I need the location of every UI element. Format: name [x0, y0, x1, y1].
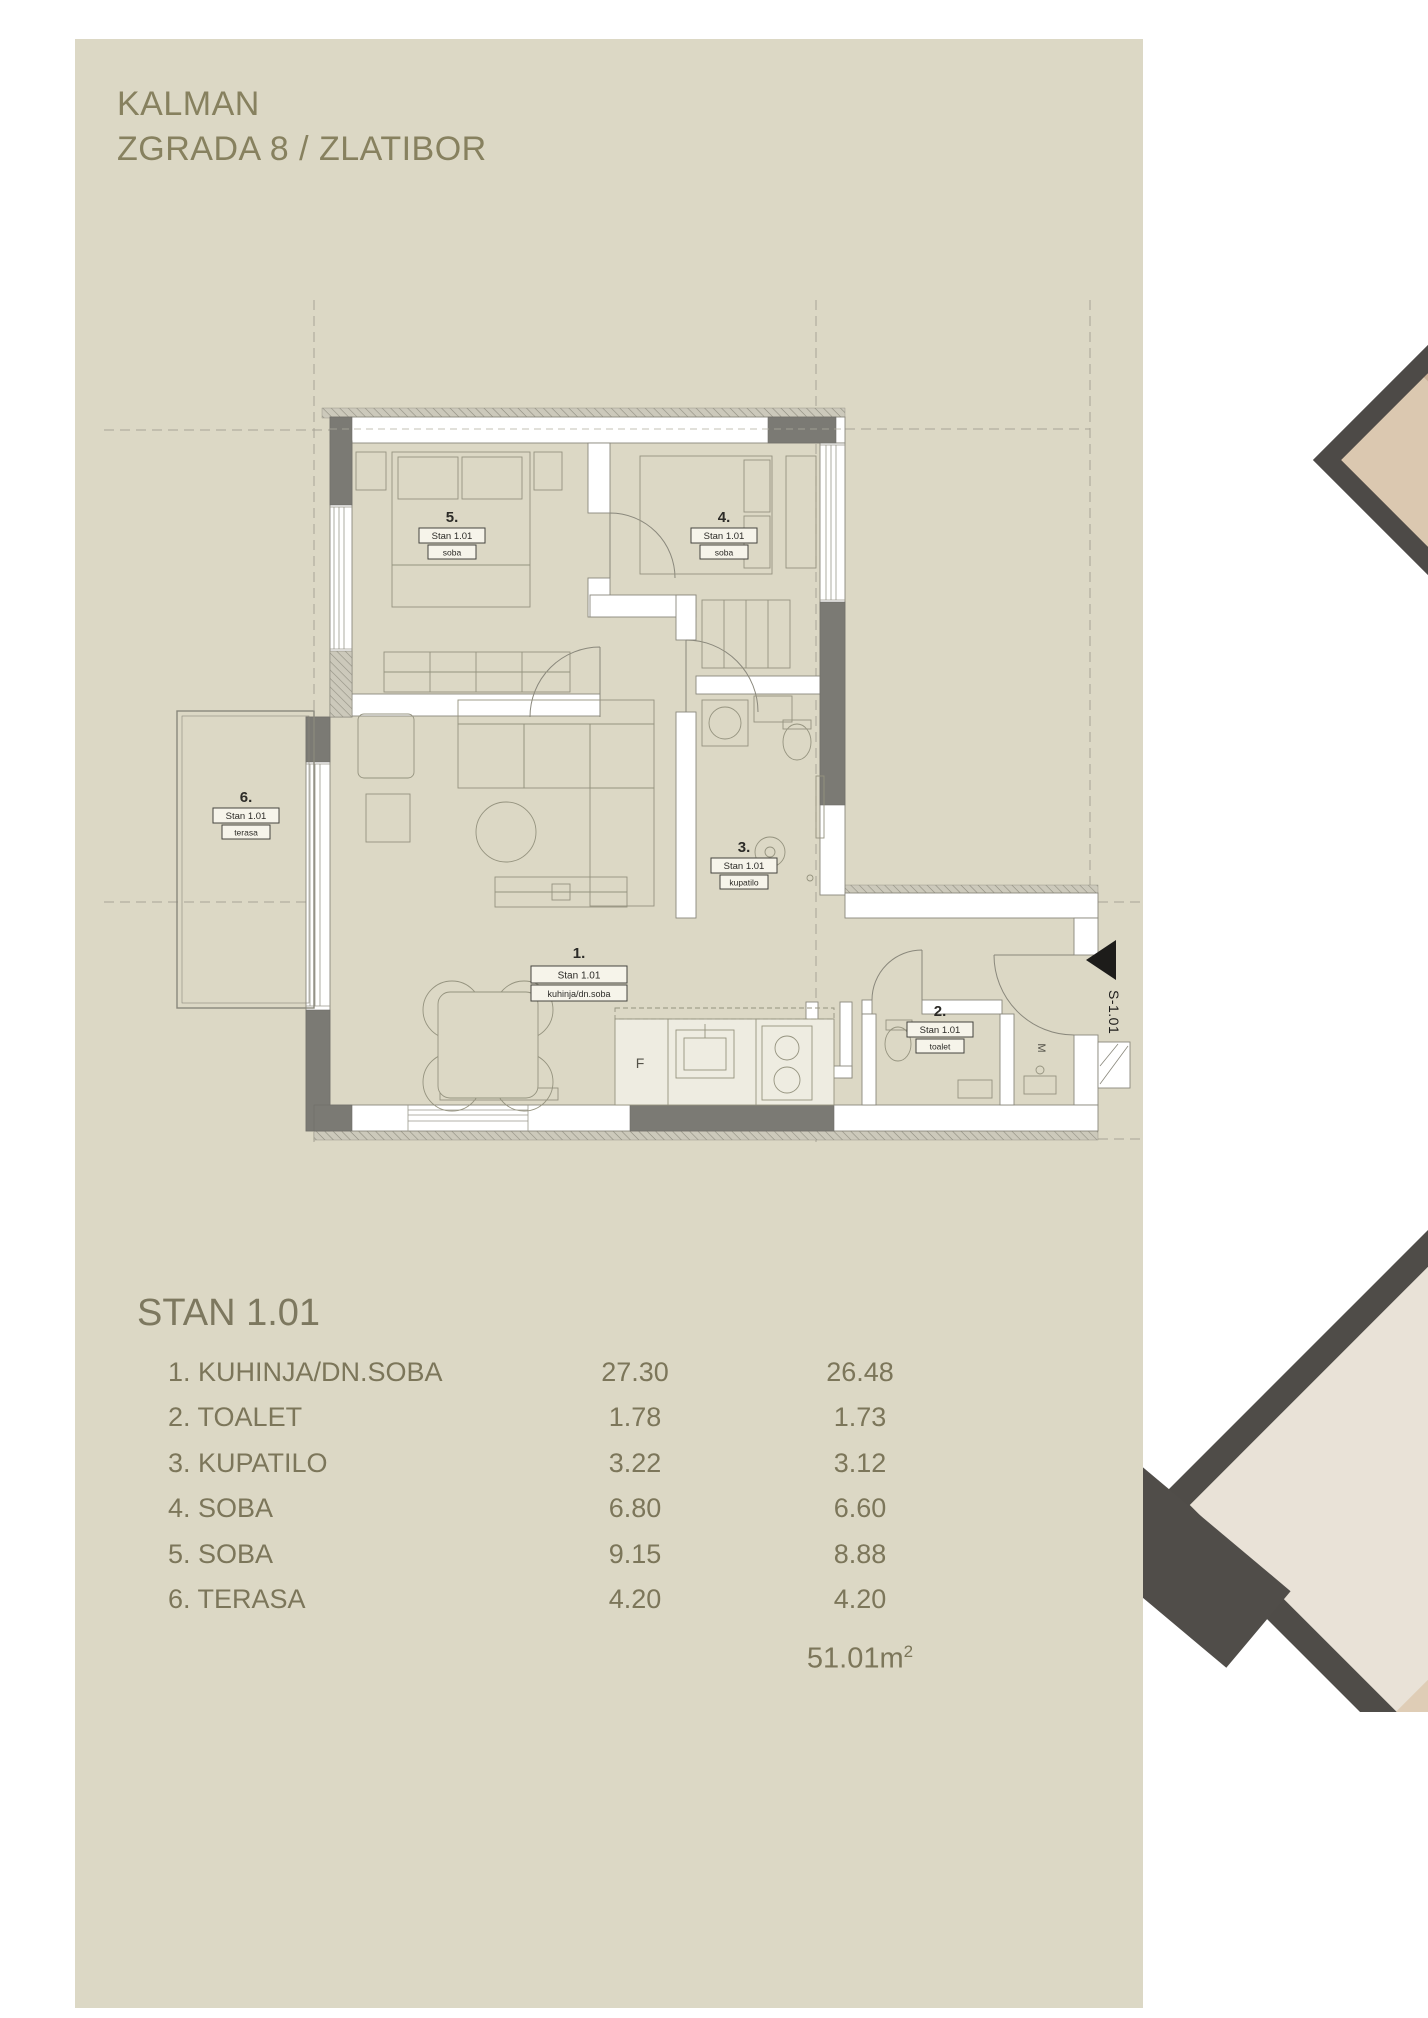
room-area: 6.80: [555, 1493, 715, 1524]
render-top-floor: [1341, 377, 1428, 644]
room-area-reduced: 6.60: [780, 1493, 940, 1524]
apartment-title: STAN 1.01: [137, 1292, 320, 1335]
project-title: KALMAN ZGRADA 8 / ZLATIBOR: [117, 82, 487, 172]
total-area: 51.01m2: [780, 1642, 940, 1676]
project-name: KALMAN: [117, 82, 487, 127]
room-area: 3.22: [555, 1448, 715, 1479]
total-area-value: 51.01m: [807, 1643, 904, 1675]
render-fragment-top: [1313, 248, 1428, 672]
render-strip: [1143, 0, 1428, 1712]
building-name: ZGRADA 8 / ZLATIBOR: [117, 127, 487, 172]
room-area: 4.20: [555, 1584, 715, 1615]
room-area: 1.78: [555, 1402, 715, 1433]
room-area-reduced: 3.12: [780, 1448, 940, 1479]
room-area-reduced: 8.88: [780, 1539, 940, 1570]
room-name: 5. SOBA: [168, 1539, 273, 1570]
render-top-interior: [1341, 276, 1428, 644]
room-name: 3. KUPATILO: [168, 1448, 328, 1479]
room-area-reduced: 26.48: [780, 1357, 940, 1388]
room-area-reduced: 1.73: [780, 1402, 940, 1433]
render-wood-floor: [1396, 1253, 1428, 1712]
brochure-page: KALMAN ZGRADA 8 / ZLATIBOR: [0, 0, 1428, 2018]
sheet-panel: [75, 39, 1143, 2008]
room-name: 4. SOBA: [168, 1493, 273, 1524]
room-area-reduced: 4.20: [780, 1584, 940, 1615]
room-name: 1. KUHINJA/DN.SOBA: [168, 1357, 443, 1388]
total-area-sup: 2: [904, 1642, 913, 1661]
room-area: 9.15: [555, 1539, 715, 1570]
room-area: 27.30: [555, 1357, 715, 1388]
room-name: 2. TOALET: [168, 1402, 302, 1433]
room-name: 6. TERASA: [168, 1584, 306, 1615]
